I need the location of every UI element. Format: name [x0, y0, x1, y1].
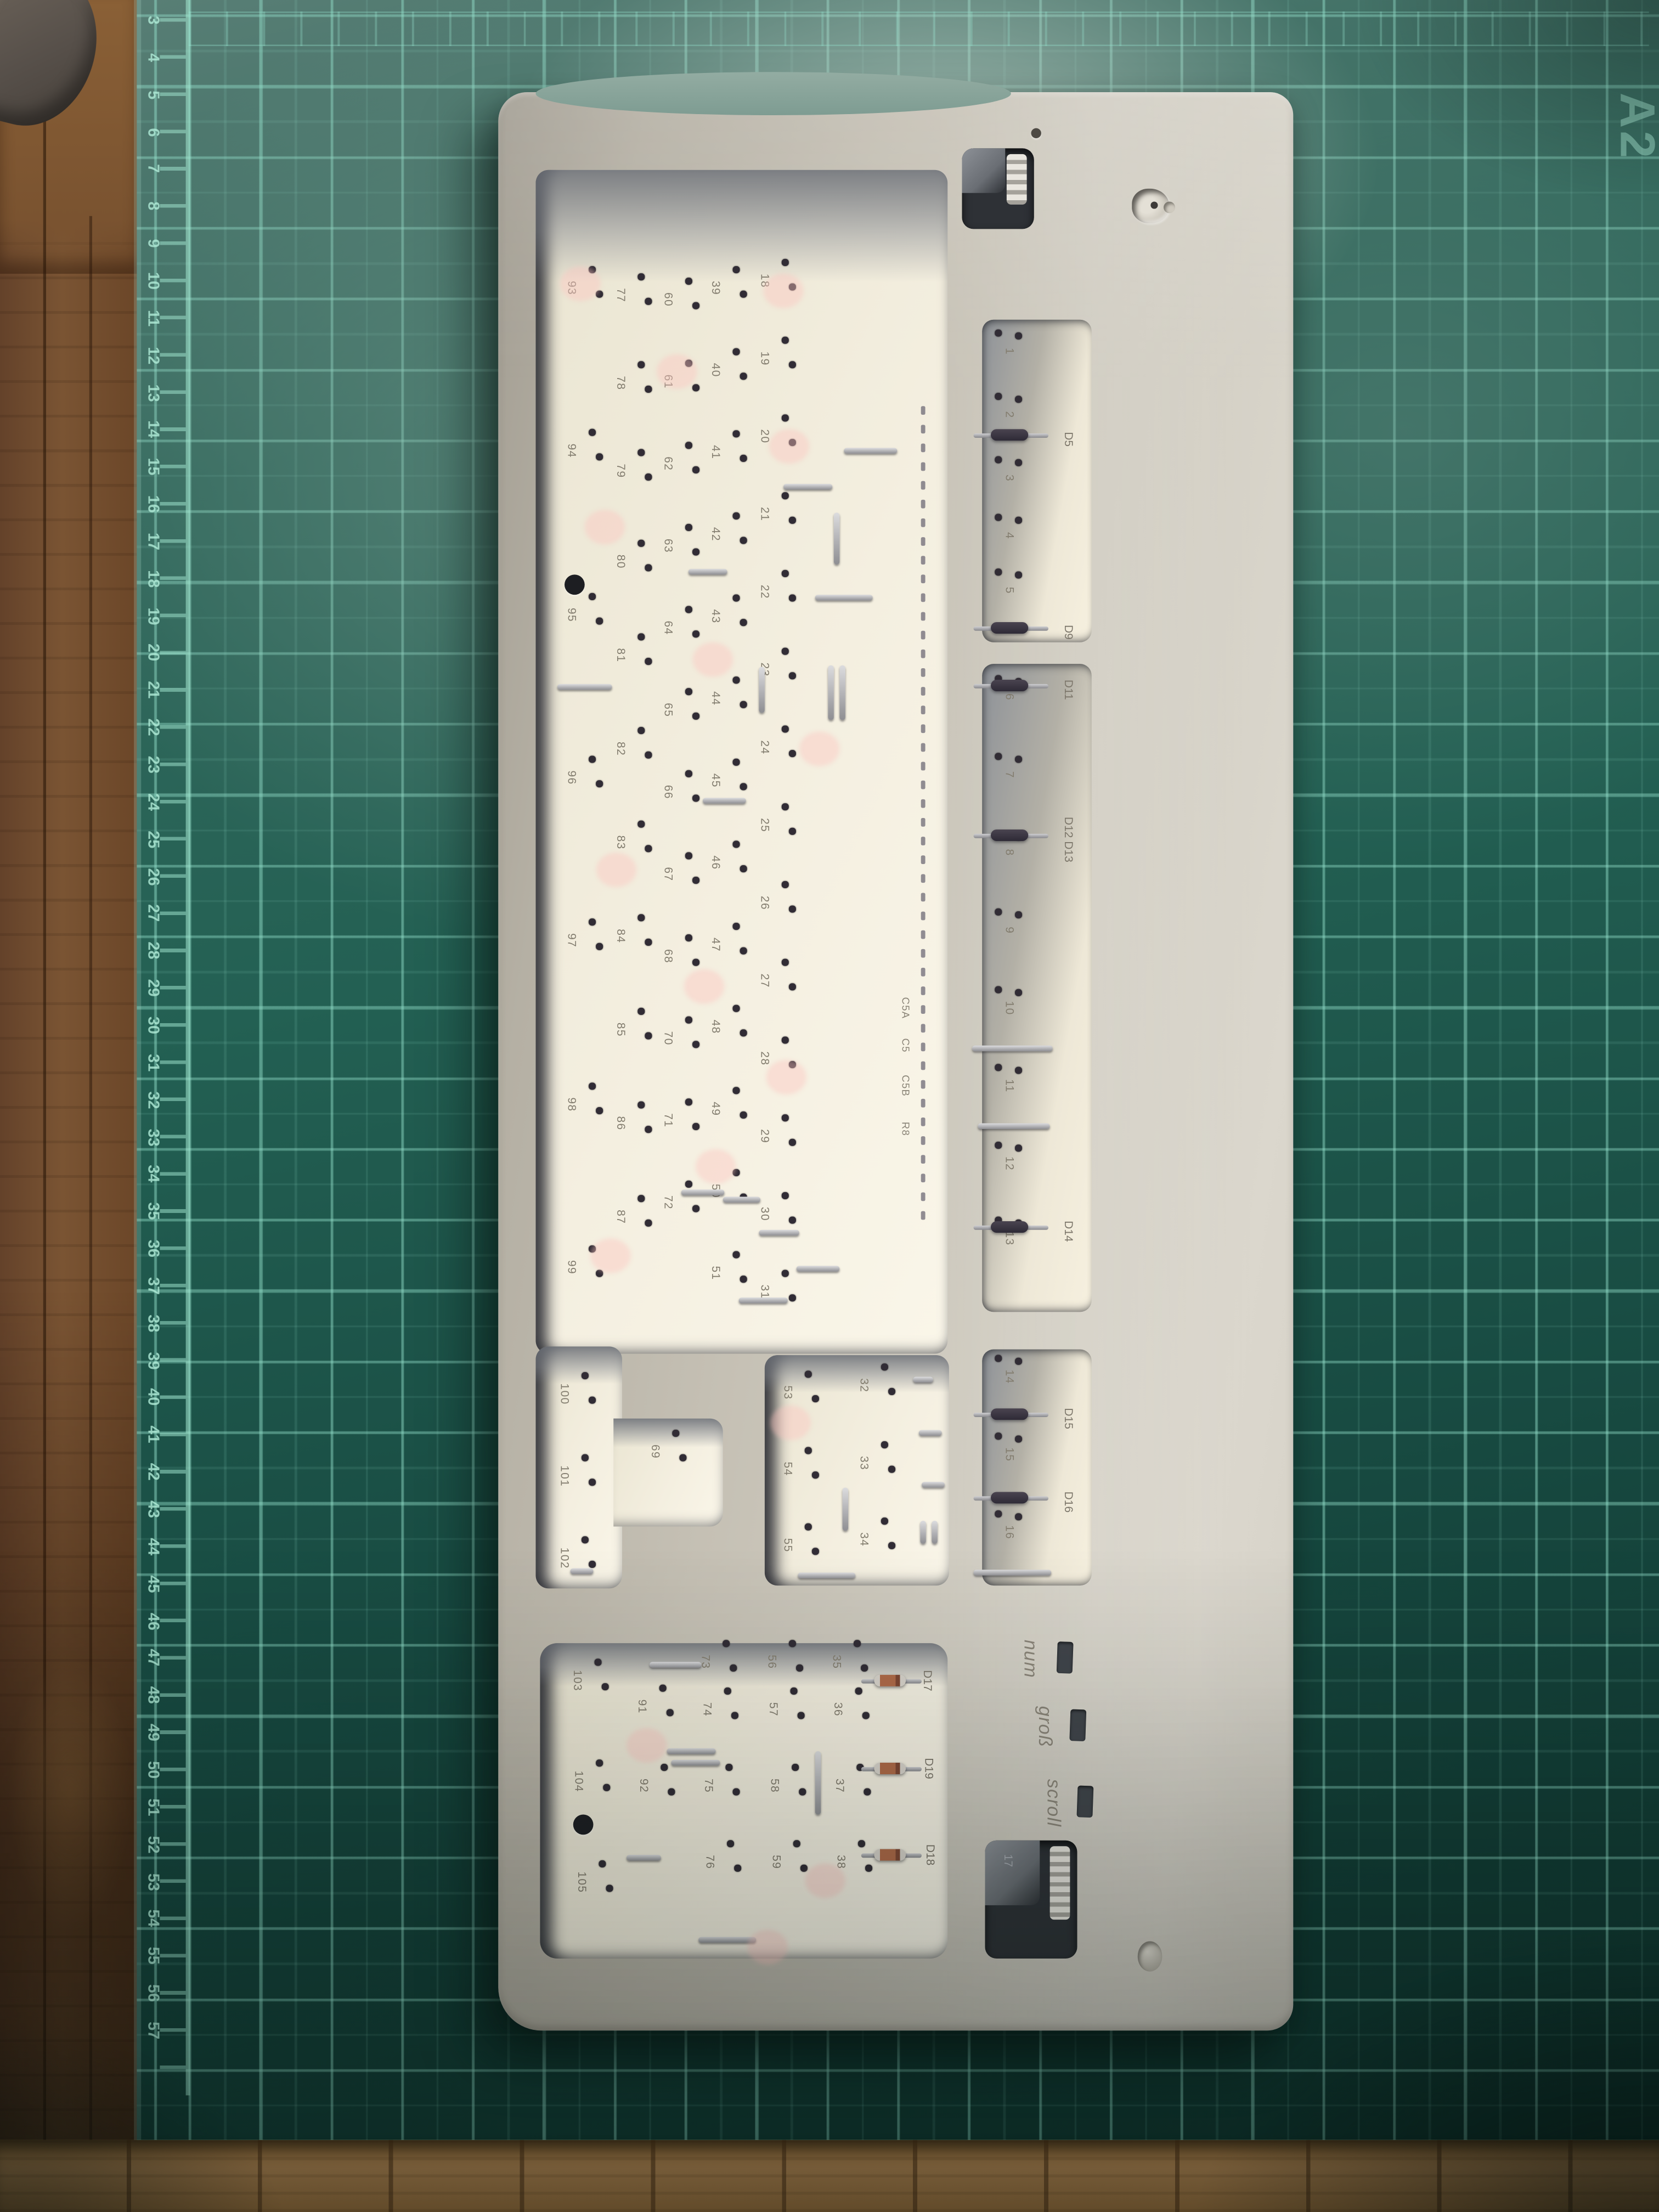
- opening-shadow: [536, 1346, 623, 1384]
- case-curved-top-edge: [536, 72, 1011, 115]
- main-key-block-opening: [536, 170, 948, 1354]
- cable-channel-opening-bottom: [985, 1841, 1077, 1959]
- wood-floor-left: [0, 0, 138, 2212]
- led-window-caps: [1069, 1709, 1086, 1741]
- molded-dimple: [1138, 1942, 1163, 1972]
- led-window-num: [1057, 1641, 1074, 1674]
- opening-shadow: [613, 1419, 723, 1448]
- led-label-num: num: [1020, 1640, 1042, 1678]
- mat-size-label: A2: [1608, 93, 1659, 161]
- function-row-opening-1: [982, 320, 1092, 642]
- ruler-ticks: [160, 0, 185, 2095]
- ribbed-strain-relief: [1007, 154, 1027, 204]
- top-ruler-band: [189, 12, 1649, 46]
- wood-grain: [0, 2140, 1659, 2212]
- wood-floor-bottom: [0, 2140, 1659, 2212]
- cable-channel-opening-top: [962, 148, 1034, 229]
- photo-keyboard-case-on-cutting-mat: A2 17 num groß scroll 345678910111213141…: [0, 0, 1659, 2212]
- apple-logo-imprint: [1132, 189, 1169, 223]
- led-label-scroll: scroll: [1043, 1779, 1065, 1827]
- led-label-caps: groß: [1035, 1706, 1056, 1747]
- numpad-opening: [540, 1643, 947, 1959]
- arrow-cluster-opening-bar: [536, 1346, 623, 1588]
- cavity-highlight: [985, 1841, 1041, 1905]
- arrow-cluster-opening-stub: [613, 1419, 723, 1527]
- mat-edge: [134, 0, 141, 2146]
- function-row-opening-2: [982, 664, 1092, 1312]
- ribbed-strain-relief: [1050, 1846, 1070, 1919]
- ruler-baseline: [186, 0, 190, 2095]
- cavity-highlight: [962, 148, 1006, 193]
- molded-dot: [1031, 128, 1041, 138]
- opening-shadow: [765, 1355, 949, 1392]
- opening-shadow: [536, 170, 948, 283]
- wood-shadow: [0, 1290, 138, 2212]
- led-window-scroll: [1077, 1786, 1094, 1818]
- function-row-opening-3: [982, 1350, 1092, 1586]
- scene: A2 17 num groß scroll 345678910111213141…: [0, 0, 1659, 2212]
- nav-cluster-opening: [765, 1355, 949, 1585]
- cable-port-label: 17: [1002, 1854, 1015, 1867]
- opening-shadow: [540, 1643, 947, 1686]
